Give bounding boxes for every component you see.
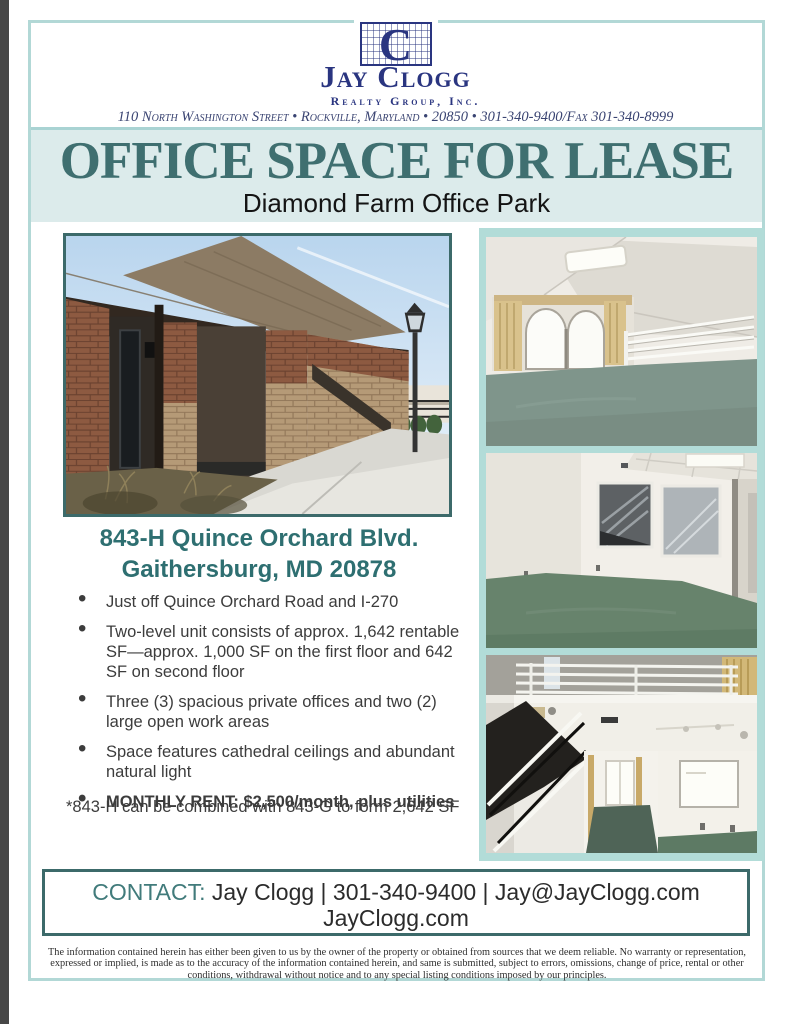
building-exterior-illustration (66, 236, 449, 514)
contact-info: Jay Clogg | 301-340-9400 | Jay@JayClogg.… (206, 879, 700, 905)
scan-edge-strip (0, 0, 9, 1024)
website-text: JayClogg.com (45, 905, 747, 931)
title-band: OFFICE SPACE FOR LEASE Diamond Farm Offi… (31, 130, 762, 222)
feature-list: Just off Quince Orchard Road and I-270 T… (70, 592, 474, 822)
contact-line: CONTACT: Jay Clogg | 301-340-9400 | Jay@… (45, 879, 747, 905)
property-address-line1: 843-H Quince Orchard Blvd. (63, 523, 455, 554)
contact-box: CONTACT: Jay Clogg | 301-340-9400 | Jay@… (42, 869, 750, 936)
feature-text: Space features cathedral ceilings and ab… (106, 743, 455, 781)
page-subtitle: Diamond Farm Office Park (31, 189, 762, 218)
feature-item: Three (3) spacious private offices and t… (70, 692, 474, 732)
loft-interior-illustration (486, 237, 757, 446)
property-address-line2: Gaithersburg, MD 20878 (63, 554, 455, 585)
building-exterior-photo (63, 233, 452, 517)
two-level-interior-illustration (486, 655, 757, 853)
office-interior-illustration (486, 453, 757, 648)
feature-text: Just off Quince Orchard Road and I-270 (106, 593, 398, 611)
two-level-interior-photo (486, 655, 757, 853)
feature-text: Two-level unit consists of approx. 1,642… (106, 623, 459, 681)
photo-column (479, 228, 764, 861)
disclaimer-text: The information contained herein has eit… (38, 947, 756, 981)
company-subtitle: Realty Group, Inc. (331, 94, 481, 109)
contact-label: CONTACT: (92, 879, 205, 905)
combination-note: *843-H can be combined with 843-G to for… (66, 798, 476, 817)
feature-text: Three (3) spacious private offices and t… (106, 693, 437, 731)
feature-item: Two-level unit consists of approx. 1,642… (70, 622, 474, 682)
page-title: OFFICE SPACE FOR LEASE (31, 133, 762, 189)
office-interior-photo (486, 453, 757, 648)
feature-item: Space features cathedral ceilings and ab… (70, 742, 474, 782)
company-name: Jay Clogg (0, 60, 791, 94)
flyer-page: C Jay Clogg Realty Group, Inc. 110 North… (0, 0, 791, 1024)
property-address: 843-H Quince Orchard Blvd. Gaithersburg,… (63, 523, 455, 585)
feature-item: Just off Quince Orchard Road and I-270 (70, 592, 474, 612)
loft-interior-photo (486, 237, 757, 446)
office-address-line: 110 North Washington Street • Rockville,… (31, 109, 760, 126)
